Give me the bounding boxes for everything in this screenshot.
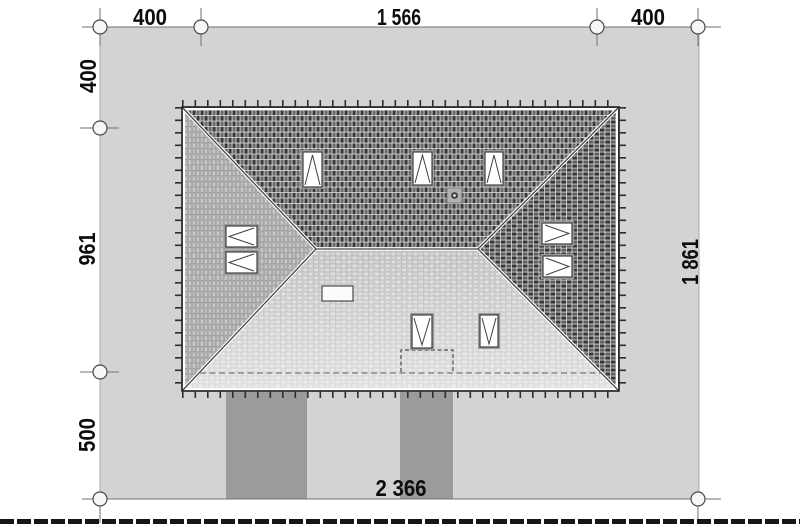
skylight-north-3 [485, 152, 503, 185]
dim-left-top: 400 [75, 59, 101, 93]
dim-top-left: 400 [133, 4, 167, 30]
driveway-strip [226, 392, 307, 499]
dim-top-right: 400 [631, 4, 665, 30]
skylight-east-2 [543, 256, 572, 277]
skylight-north-2 [413, 152, 432, 185]
skylight-east-1 [542, 223, 572, 244]
skylight-north-1 [303, 152, 322, 187]
dim-bottom-total: 2 366 [376, 475, 427, 501]
roof-vent [447, 188, 462, 203]
skylight-south-1 [412, 315, 432, 348]
dim-top-middle: 1 566 [377, 4, 421, 30]
hip-roof-plan [179, 104, 623, 395]
site-plan-canvas: 400 1 566 400 400 961 500 1 861 2 366 [0, 0, 800, 524]
dim-right-total: 1 861 [677, 239, 703, 285]
dim-left-middle: 961 [74, 232, 100, 265]
skylight-west-1 [226, 226, 257, 247]
roof-hatch [322, 286, 353, 301]
skylight-west-2 [226, 252, 257, 273]
skylight-south-2 [480, 315, 498, 347]
dim-left-bottom: 500 [74, 418, 100, 452]
roof-site-plan-drawing: 400 1 566 400 400 961 500 1 861 2 366 [0, 0, 800, 524]
